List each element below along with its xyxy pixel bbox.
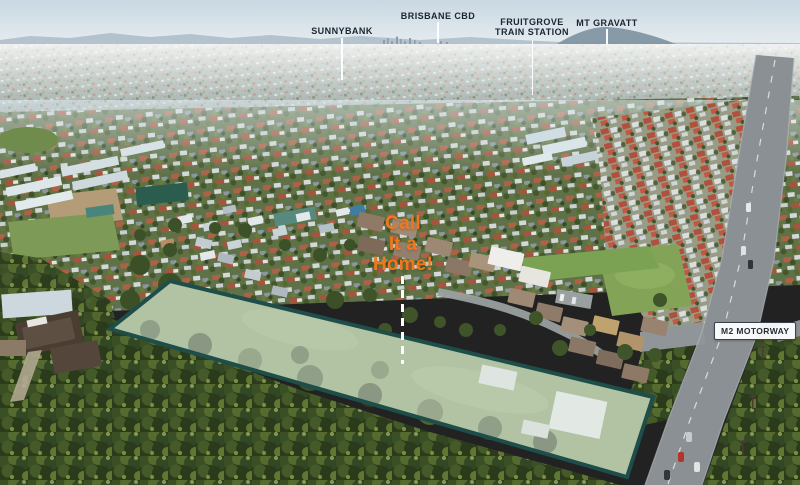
label-fruitgrove-line2: TRAIN STATION: [495, 27, 569, 37]
label-fruitgrove-line1: FRUITGROVE: [495, 17, 569, 27]
callout-line2: It a: [373, 235, 433, 256]
label-sunnybank: SUNNYBANK: [311, 26, 373, 36]
pointer-line-mt-gravatt: [606, 29, 608, 45]
pointer-line-sunnybank: [341, 38, 343, 80]
callout-text: Call It a Home!: [373, 214, 433, 276]
callout-line3: Home!: [373, 255, 433, 276]
pointer-line-brisbane-cbd: [437, 22, 439, 43]
m2-motorway-badge: M2 MOTORWAY: [714, 322, 796, 340]
callout-dashed-pointer: [401, 276, 404, 364]
callout-line1: Call: [373, 214, 433, 235]
m2-motorway-label: M2 MOTORWAY: [721, 326, 789, 336]
label-brisbane-cbd: BRISBANE CBD: [401, 11, 475, 21]
aerial-photo: SUNNYBANK BRISBANE CBD FRUITGROVE TRAIN …: [0, 0, 800, 485]
pointer-line-fruitgrove: [532, 40, 534, 95]
label-fruitgrove-train-station: FRUITGROVE TRAIN STATION: [495, 17, 569, 37]
label-mt-gravatt: MT GRAVATT: [576, 18, 638, 28]
